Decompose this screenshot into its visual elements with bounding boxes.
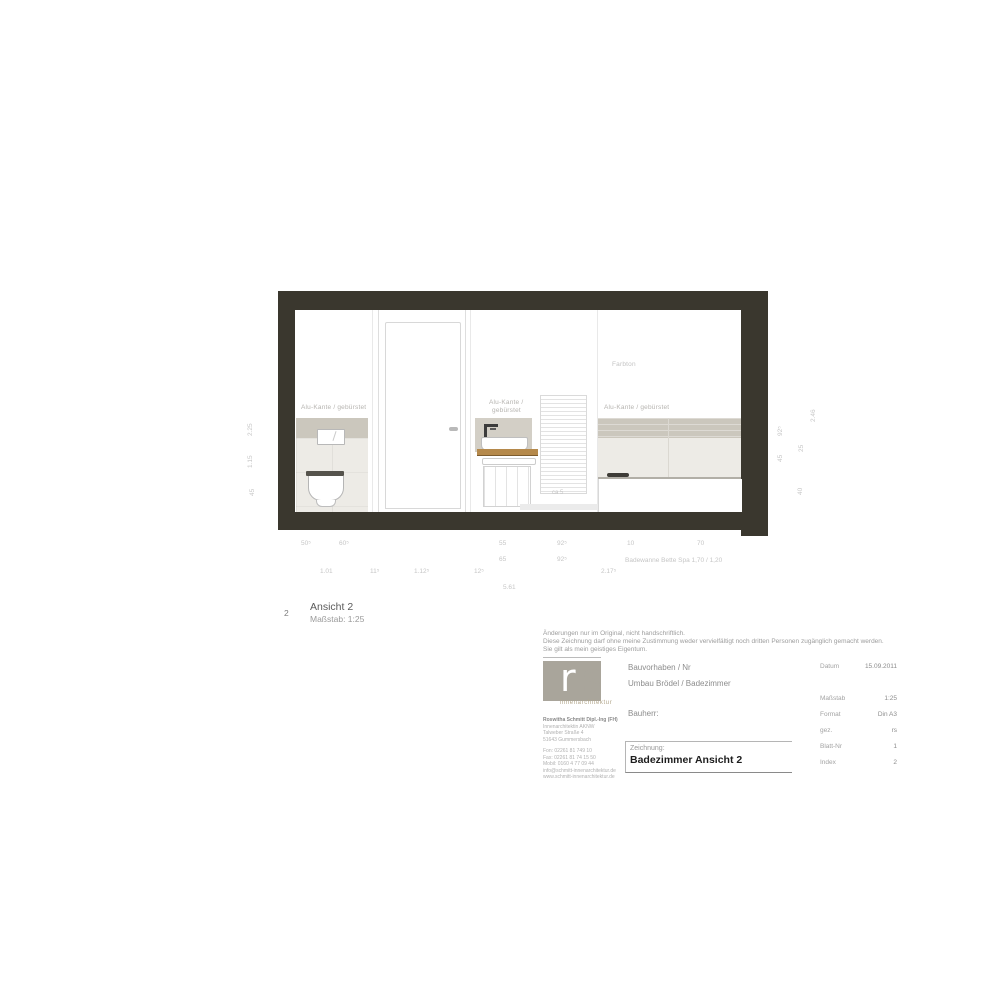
meta-value: 1:25 <box>853 695 897 702</box>
logo-letter-r: r <box>560 656 576 700</box>
alu-kante-label-right: Alu-Kante / gebürstet <box>604 404 669 411</box>
sink-faucet-spout <box>484 424 498 427</box>
wall-joint-line <box>470 310 471 512</box>
view-number: 2 <box>284 608 289 618</box>
dim-label: 60⁵ <box>339 540 349 547</box>
view-scale: Maßstab: 1:25 <box>310 614 364 624</box>
door-frame-line <box>465 310 466 512</box>
right-wall-section <box>741 291 768 536</box>
dim-vertical: 25 <box>798 445 805 452</box>
meta-value: Din A3 <box>853 711 897 718</box>
dim-label: 10 <box>627 540 634 547</box>
towel-rail <box>482 458 536 465</box>
web-line: www.schmitt-innenarchitektur.de <box>543 774 618 781</box>
ceiling-section <box>278 291 741 310</box>
toilet-bowl-base <box>316 500 336 507</box>
dim-label: 92⁵ <box>557 556 567 563</box>
toilet-bowl <box>308 476 344 501</box>
dim-label: 12⁵ <box>474 568 484 575</box>
view-title: Ansicht 2 <box>310 601 353 613</box>
vanity-cabinet <box>483 466 531 507</box>
dim-vertical: 45 <box>249 489 256 496</box>
drawing-sheet: Alu-Kante / gebürstet Alu-Kante / gebürs… <box>0 0 999 999</box>
disclaimer-line: Sie gilt als mein geistiges Eigentum. <box>543 646 884 654</box>
dim-label: 2.17⁵ <box>601 568 616 575</box>
dim-label: 92⁵ <box>557 540 567 547</box>
client-label: Bauherr: <box>628 709 659 718</box>
dim-label: 11⁵ <box>370 568 379 575</box>
dim-vertical: 2.25 <box>247 423 254 436</box>
logo-subtitle: innenarchitektur <box>560 700 612 706</box>
dim-vertical: 40 <box>797 488 804 495</box>
door-handle-icon <box>449 427 458 431</box>
tub-front-panel <box>598 479 742 512</box>
meta-label: Datum <box>820 663 839 670</box>
drawing-value: Badezimmer Ansicht 2 <box>630 754 742 766</box>
drawing-name-box: Zeichnung: Badezimmer Ansicht 2 <box>625 741 792 773</box>
logo-letter-s: s <box>582 656 602 700</box>
tub-tile-joint <box>668 418 669 477</box>
disclaimer: Änderungen nur im Original, nicht handsc… <box>543 630 884 654</box>
towel-radiator <box>540 395 587 494</box>
project-value: Umbau Brödel / Badezimmer <box>628 679 731 688</box>
sink-faucet-handle <box>490 428 496 430</box>
countertop-wood <box>477 449 538 456</box>
meta-label: Index <box>820 759 836 766</box>
tub-tile-panel <box>598 438 741 477</box>
meta-value: rs <box>853 727 897 734</box>
alu-kante-label-left: Alu-Kante / gebürstet <box>301 404 366 411</box>
radiator-note: ca 5 <box>552 490 563 496</box>
dim-note: Badewanne Bette Spa 1,70 / 1,20 <box>625 557 722 564</box>
tub-tile-band <box>598 418 741 438</box>
dim-label: 1.12⁵ <box>414 568 429 575</box>
meta-label: gez. <box>820 727 832 734</box>
dim-vertical: 92⁵ <box>777 426 784 436</box>
door-leaf <box>385 322 461 509</box>
dim-label: 50⁵ <box>301 540 311 547</box>
meta-label: Format <box>820 711 841 718</box>
dim-label: 65 <box>499 556 506 563</box>
disclaimer-line: Diese Zeichnung darf ohne meine Zustimmu… <box>543 638 884 646</box>
dim-total: 5.61 <box>503 584 516 591</box>
alu-kante-label-sink-2: gebürstet <box>492 407 521 414</box>
door-frame-line <box>378 310 379 512</box>
meta-value: 15.09.2011 <box>853 663 897 670</box>
meta-value: 2 <box>853 759 897 766</box>
dim-label: 1.01 <box>320 568 333 575</box>
drawing-label: Zeichnung: <box>630 745 665 752</box>
dim-label: 70 <box>697 540 704 547</box>
floor-strip <box>520 504 600 510</box>
project-label: Bauvorhaben / Nr <box>628 663 691 672</box>
floor-section <box>278 512 741 530</box>
meta-label: Blatt-Nr <box>820 743 842 750</box>
architect-name: Roswitha Schmitt Dipl.-Ing (FH) <box>543 717 618 724</box>
disclaimer-line: Änderungen nur im Original, nicht handsc… <box>543 630 884 638</box>
dim-vertical: 45 <box>777 455 784 462</box>
dim-vertical: 2.46 <box>810 409 817 422</box>
dim-vertical: 1.15 <box>247 455 254 468</box>
address-block: Roswitha Schmitt Dipl.-Ing (FH) Innenarc… <box>543 717 618 781</box>
flush-plate <box>317 429 345 445</box>
tub-faucet-icon <box>607 473 629 477</box>
left-wall-section <box>278 310 295 530</box>
farbton-label: Farbton <box>612 361 636 368</box>
meta-value: 1 <box>853 743 897 750</box>
dim-label: 55 <box>499 540 506 547</box>
alu-kante-label-sink-1: Alu-Kante / <box>489 399 523 406</box>
wall-joint-line <box>372 310 373 512</box>
meta-label: Maßstab <box>820 695 845 702</box>
